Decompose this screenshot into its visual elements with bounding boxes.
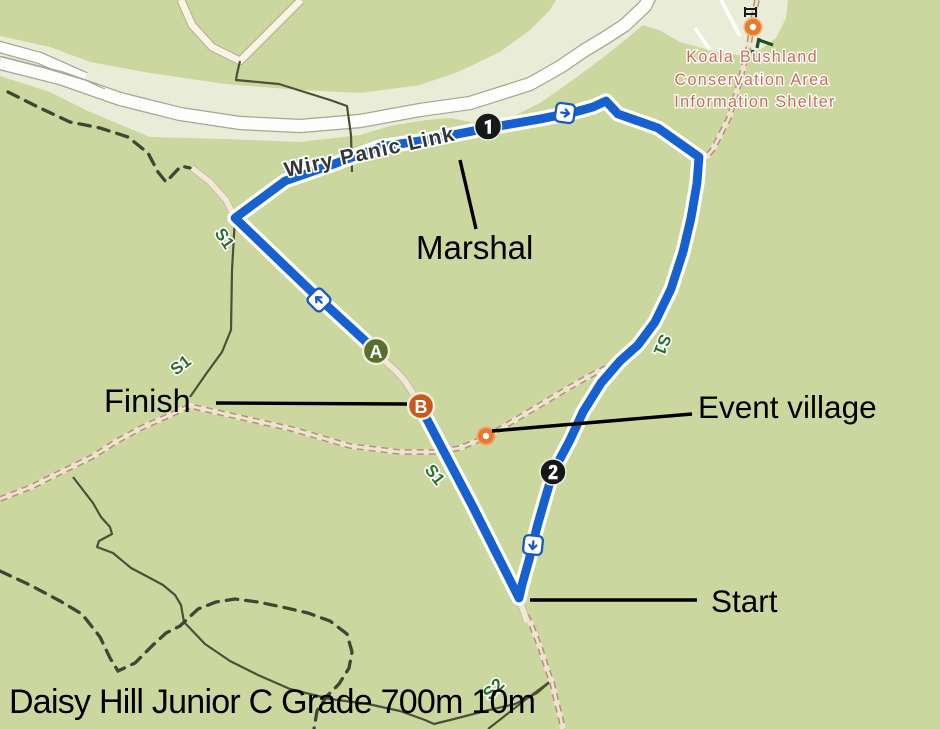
svg-text:Daisy Hill Junior C Grade 700m: Daisy Hill Junior C Grade 700m 10m [9,683,535,721]
svg-text:Event village: Event village [698,389,877,425]
svg-text:B: B [415,397,428,417]
svg-text:Start: Start [711,583,778,619]
svg-text:A: A [370,342,383,362]
svg-text:Finish: Finish [104,383,191,419]
svg-text:Marshal: Marshal [416,229,533,266]
svg-text:Koala Bushland Conservation: Koala Bushland Conservation Area Informa… [674,48,835,111]
